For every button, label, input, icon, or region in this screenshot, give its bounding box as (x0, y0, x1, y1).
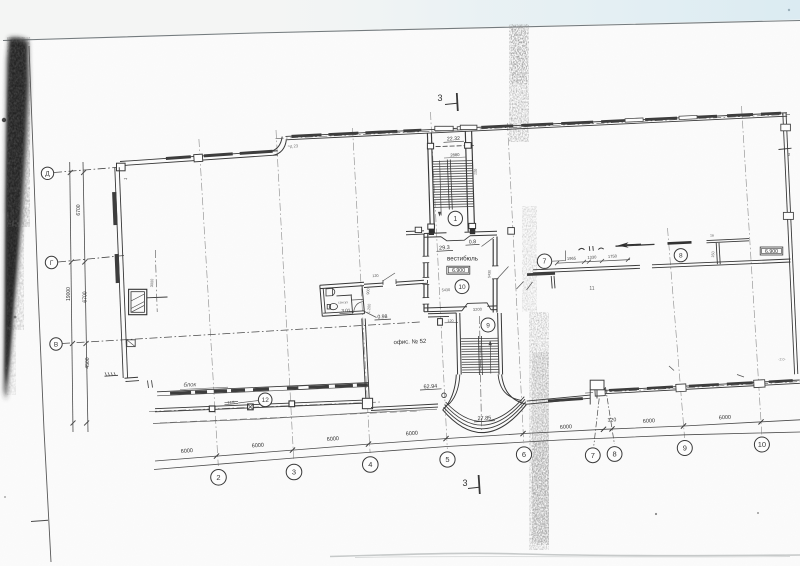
svg-text:6000: 6000 (643, 418, 656, 425)
svg-text:7: 7 (591, 451, 595, 460)
svg-text:6.900: 6.900 (452, 268, 465, 274)
svg-text:2880: 2880 (450, 152, 460, 158)
svg-text:9: 9 (683, 444, 687, 453)
svg-text:5: 5 (445, 455, 449, 464)
svg-text:1: 1 (453, 216, 457, 223)
svg-text:5430: 5430 (487, 270, 491, 278)
svg-text:5430: 5430 (442, 288, 451, 292)
svg-text:1750: 1750 (608, 253, 618, 258)
svg-text:8: 8 (679, 253, 683, 260)
svg-text:900: 900 (366, 288, 370, 295)
svg-text:6000: 6000 (327, 436, 340, 443)
svg-text:3.01: 3.01 (341, 308, 351, 313)
svg-text:3200: 3200 (473, 307, 483, 312)
svg-text:120: 120 (372, 274, 379, 278)
svg-text:150: 150 (711, 251, 715, 258)
svg-text:сан.уз: сан.уз (338, 300, 348, 305)
svg-text:·2.0·: ·2.0· (778, 358, 785, 362)
svg-text:1.200: 1.200 (367, 304, 371, 314)
svg-text:офис. № 52: офис. № 52 (393, 338, 427, 346)
svg-text:2: 2 (216, 473, 220, 482)
svg-text:Д: Д (45, 171, 50, 178)
svg-text:6000: 6000 (181, 448, 194, 455)
svg-text:8: 8 (613, 450, 617, 459)
svg-text:В: В (54, 341, 58, 348)
svg-text:10: 10 (758, 440, 766, 449)
svg-text:19000: 19000 (66, 287, 72, 301)
svg-text:6000: 6000 (406, 431, 419, 438)
svg-text:6700: 6700 (83, 291, 89, 302)
svg-text:Г: Г (50, 260, 54, 267)
svg-text:3000: 3000 (150, 279, 154, 288)
svg-text:11: 11 (589, 286, 594, 292)
svg-text:блок: блок (183, 382, 197, 389)
svg-text:3: 3 (462, 478, 467, 488)
svg-text:9: 9 (486, 322, 490, 329)
svg-text:6.900: 6.900 (765, 249, 778, 255)
svg-text:1в: 1в (710, 234, 714, 238)
svg-text:120: 120 (473, 169, 478, 176)
svg-text:вестибюль: вестибюль (447, 256, 478, 263)
svg-text:12: 12 (262, 397, 270, 404)
svg-text:6000: 6000 (252, 443, 265, 450)
svg-text:10: 10 (458, 284, 466, 291)
svg-text:3: 3 (437, 93, 442, 103)
svg-text:6: 6 (522, 450, 526, 459)
svg-text:6000: 6000 (719, 415, 732, 422)
svg-text:1330: 1330 (587, 254, 597, 259)
svg-text:6000: 6000 (560, 424, 573, 431)
svg-text:3: 3 (292, 468, 296, 477)
svg-text:4: 4 (368, 460, 372, 469)
svg-text:320: 320 (607, 417, 616, 423)
svg-text:7: 7 (543, 259, 547, 266)
svg-text:1965: 1965 (567, 256, 577, 261)
svg-text:≈д 23: ≈д 23 (288, 143, 299, 149)
svg-text:6700: 6700 (76, 204, 82, 215)
svg-text:4500: 4500 (85, 357, 91, 368)
